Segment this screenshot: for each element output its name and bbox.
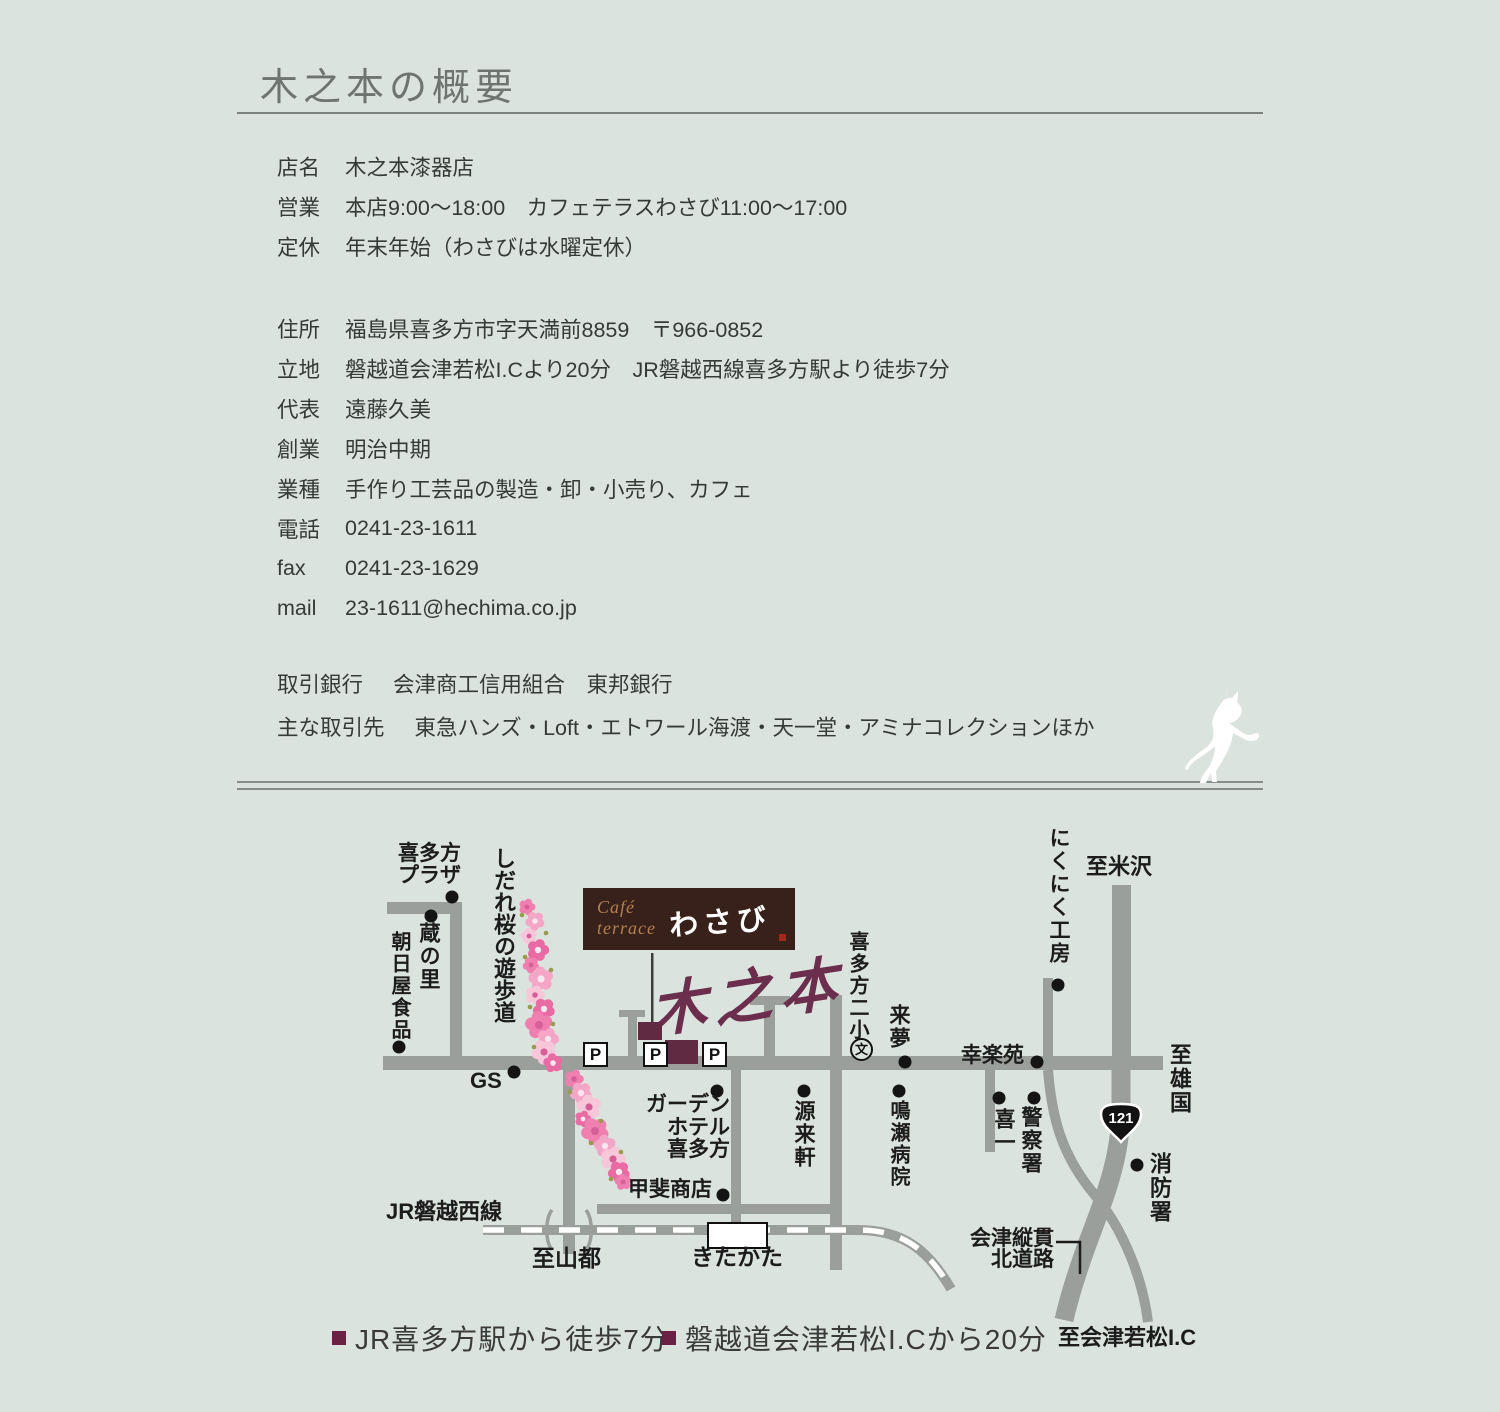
legend-square-icon [332, 1331, 346, 1345]
map-label-nikuniku: にくにく工房 [1046, 827, 1070, 965]
title-divider [237, 112, 1263, 114]
info-value: 明治中期 [345, 433, 431, 464]
info-row-business: 業種手作り工芸品の製造・卸・小売り、カフェ [277, 468, 950, 508]
parking-icon: P [583, 1042, 608, 1067]
page-title: 木之本の概要 [260, 56, 518, 111]
legend-square-icon [662, 1331, 676, 1345]
map-label-jr-line: JR磐越西線 [386, 1200, 502, 1223]
info-value: 年末年始（わさびは水曜定休） [345, 231, 646, 262]
map-label-police: 警察署 [1018, 1106, 1042, 1175]
info-row-phone: 電話0241-23-1611 [277, 508, 950, 548]
info-label: 業種 [277, 473, 345, 504]
wasabi-logo: わさび [668, 895, 773, 944]
info-value: 23-1611@hechima.co.jp [345, 596, 577, 621]
info-row-mail: mail23-1611@hechima.co.jp [277, 588, 950, 628]
info-label: 店名 [277, 151, 345, 182]
cat-icon [1183, 686, 1263, 786]
section-divider-bottom [237, 788, 1263, 790]
map-label-gs: GS [470, 1069, 502, 1092]
map-label-to-yonezawa: 至米沢 [1086, 855, 1152, 878]
map-label-garden-hotel: ガーデン ホテル 喜多方 [644, 1094, 730, 1162]
cafe-terrace-sign: Café terrace わさび [583, 888, 795, 950]
info-value: 福島県喜多方市字天満前8859 〒966-0852 [345, 313, 763, 344]
cafe-sign-line2: terrace [597, 918, 656, 939]
legend-walk: JR喜多方駅から徒歩7分 [332, 1318, 669, 1358]
parking-icon: P [702, 1042, 727, 1067]
info-row-hours: 営業本店9:00〜18:00 カフェテラスわさび11:00〜17:00 [277, 186, 950, 226]
info-row-shop-name: 店名木之本漆器店 [277, 146, 950, 186]
info-row-closed: 定休年末年始（わさびは水曜定休） [277, 226, 950, 266]
map-label-fire-station: 消防署 [1147, 1152, 1171, 1224]
info-row-access: 立地磐越道会津若松I.Cより20分 JR磐越西線喜多方駅より徒歩7分 [277, 348, 950, 388]
legend-drive: 磐越道会津若松I.Cから20分 [662, 1318, 1047, 1358]
info-value: 手作り工芸品の製造・卸・小売り、カフェ [345, 473, 753, 504]
map-label-genraiken: 源来軒 [791, 1100, 815, 1169]
info-label: 立地 [277, 353, 345, 384]
map-label-asahiya: 朝日屋食品 [387, 931, 411, 1041]
info-row-fax: fax0241-23-1629 [277, 548, 950, 588]
info-value: 木之本漆器店 [345, 151, 474, 182]
info-value: 0241-23-1629 [345, 556, 479, 581]
info-value: 磐越道会津若松I.Cより20分 JR磐越西線喜多方駅より徒歩7分 [345, 353, 950, 384]
map-label-kourakuen: 幸楽苑 [961, 1044, 1024, 1067]
info-label: 営業 [277, 191, 345, 222]
map-label-kura-no-sato: 蔵の里 [416, 922, 440, 991]
map-label-to-wakamatsu-ic: 至会津若松I.C [1058, 1326, 1196, 1349]
school-symbol-icon: 文 [850, 1038, 873, 1061]
info-label: 創業 [277, 433, 345, 464]
parking-icon: P [643, 1042, 668, 1067]
info-value: 本店9:00〜18:00 カフェテラスわさび11:00〜17:00 [345, 191, 847, 222]
info-row-owner: 代表遠藤久美 [277, 388, 950, 428]
partner-row-banks: 取引銀行会津商工信用組合 東邦銀行 [277, 662, 1095, 705]
info-label: mail [277, 596, 345, 621]
info-label: 住所 [277, 313, 345, 344]
shop-building-main [665, 1040, 698, 1064]
map-label-to-yamato: 至山都 [532, 1247, 601, 1270]
red-seal-icon [779, 934, 786, 941]
cafe-sign-text: Café terrace [597, 897, 656, 939]
map-label-naruse-hospital: 鳴瀬病院 [886, 1100, 910, 1188]
info-label: 定休 [277, 231, 345, 262]
partner-list: 取引銀行会津商工信用組合 東邦銀行 主な取引先東急ハンズ・Loft・エトワール海… [277, 662, 1095, 748]
svg-text:121: 121 [1108, 1110, 1133, 1127]
partner-value: 会津商工信用組合 東邦銀行 [393, 668, 673, 699]
partner-label: 取引銀行 [277, 668, 363, 699]
cafe-sign-line1: Café [597, 897, 656, 918]
map-label-nisho-school: 喜多方二小 [845, 931, 869, 1041]
route-121-badge: 121 [1099, 1102, 1143, 1144]
map-label-kai-shoten: 甲斐商店 [628, 1178, 712, 1201]
partner-label: 主な取引先 [277, 711, 385, 742]
map-label-shidare-trail: しだれ桜の遊歩道 [491, 847, 515, 1023]
legend-drive-text: 磐越道会津若松I.Cから20分 [685, 1318, 1047, 1358]
map-label-kitakata-station: きたかた [691, 1246, 783, 1269]
section-divider-top [237, 781, 1263, 783]
shop-building-small [638, 1022, 662, 1040]
info-value: 遠藤久美 [345, 393, 431, 424]
info-label: 電話 [277, 513, 345, 544]
info-row-address: 住所福島県喜多方市字天満前8859 〒966-0852 [277, 308, 950, 348]
shop-info-list: 店名木之本漆器店 営業本店9:00〜18:00 カフェテラスわさび11:00〜1… [277, 146, 950, 628]
map-label-kiichi: 喜一 [991, 1108, 1015, 1154]
info-value: 0241-23-1611 [345, 516, 477, 541]
map-label-kitakata-plaza: 喜多方 プラザ [398, 843, 461, 887]
partner-value: 東急ハンズ・Loft・エトワール海渡・天一堂・アミナコレクションほか [415, 711, 1095, 742]
legend-walk-text: JR喜多方駅から徒歩7分 [355, 1318, 669, 1358]
partner-row-clients: 主な取引先東急ハンズ・Loft・エトワール海渡・天一堂・アミナコレクションほか [277, 705, 1095, 748]
info-row-founded: 創業明治中期 [277, 428, 950, 468]
map-label-to-oguni: 至雄国 [1167, 1043, 1191, 1115]
info-label: fax [277, 556, 345, 581]
map-label-raimu: 来夢 [886, 1004, 910, 1050]
map-label-jukan-road: 会津縦貫 北道路 [964, 1228, 1054, 1270]
info-label: 代表 [277, 393, 345, 424]
